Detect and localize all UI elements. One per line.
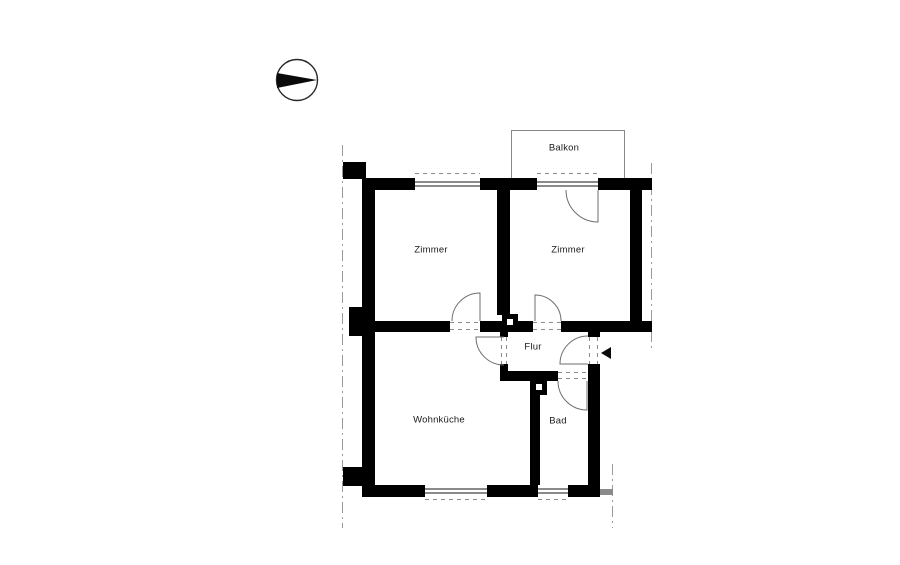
room-label-zimmer-right: Zimmer xyxy=(551,245,584,256)
floorplan-canvas: Balkon Zimmer Zimmer Flur Wohnküche Bad xyxy=(0,0,900,565)
room-label-wohnkueche: Wohnküche xyxy=(413,415,465,426)
north-indicator-icon xyxy=(277,60,318,101)
room-label-flur: Flur xyxy=(524,342,541,353)
door-swing-arc xyxy=(560,336,588,364)
thin-line-overlay xyxy=(0,0,900,565)
room-label-balkon: Balkon xyxy=(549,143,579,154)
door-swing-arc xyxy=(476,337,504,365)
entrance-arrow-icon xyxy=(601,347,611,359)
room-label-bad: Bad xyxy=(549,416,567,427)
door-swing-arc xyxy=(452,293,480,321)
room-label-zimmer-left: Zimmer xyxy=(414,245,447,256)
door-swing-arc xyxy=(535,295,561,321)
door-swing-arc xyxy=(566,190,598,222)
door-swing-arc xyxy=(558,381,587,410)
